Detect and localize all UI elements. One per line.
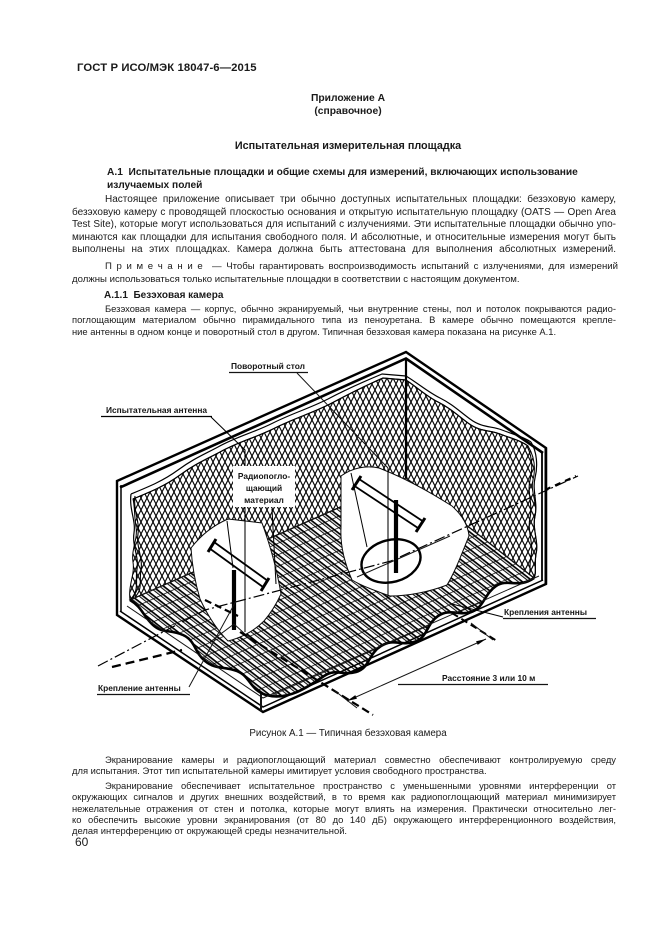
- svg-text:Радиопогло-: Радиопогло-: [238, 471, 290, 481]
- svg-text:материал: материал: [244, 495, 284, 505]
- svg-text:Поворотный стол: Поворотный стол: [231, 361, 305, 371]
- svg-text:Расстояние 3 или 10 м: Расстояние 3 или 10 м: [442, 673, 535, 683]
- svg-text:щающий: щающий: [246, 483, 282, 493]
- svg-text:Испытательная антенна: Испытательная антенна: [106, 405, 207, 415]
- svg-text:Крепления антенны: Крепления антенны: [504, 607, 587, 617]
- svg-text:Крепление антенны: Крепление антенны: [98, 683, 181, 693]
